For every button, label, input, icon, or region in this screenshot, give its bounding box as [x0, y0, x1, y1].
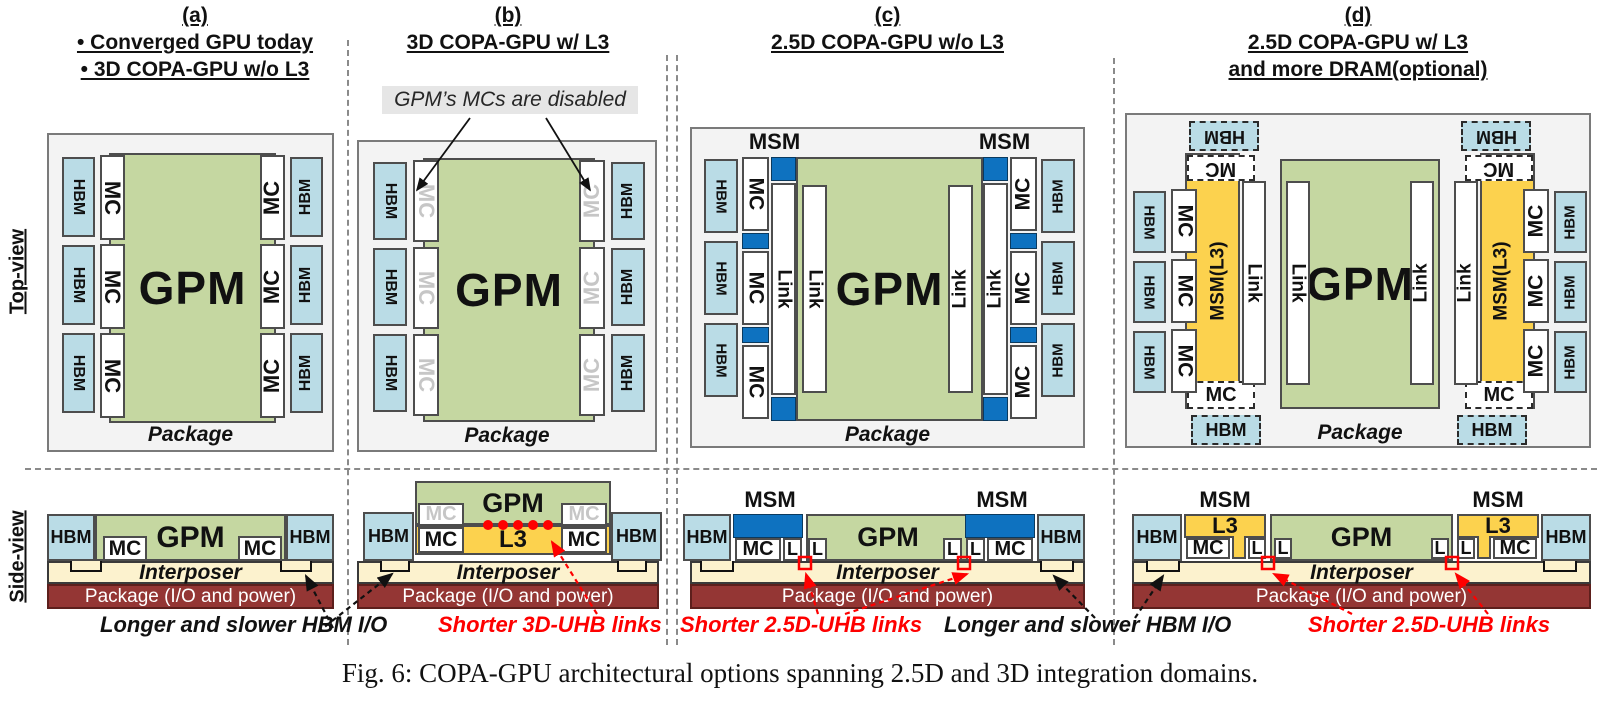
link-pad-block: L	[1431, 538, 1449, 559]
view-divider	[25, 468, 1597, 470]
mc-block: MC	[1523, 189, 1549, 253]
mc-block: MC	[1171, 259, 1197, 323]
hbm-block: HBM	[1041, 323, 1075, 397]
interposer-label: Interposer	[139, 561, 242, 585]
panel-d-line1: 2.5D COPA-GPU w/ L3	[1248, 31, 1468, 54]
package-io-bar: Package (I/O and power)	[690, 584, 1085, 609]
caption-25d-uhb-c: Shorter 2.5D-UHB links	[680, 612, 922, 638]
link-block: Link	[983, 183, 1008, 395]
link-block: Link	[1242, 181, 1266, 385]
hbm-block-optional: HBM	[1189, 121, 1259, 151]
link-pad-block: L	[1274, 538, 1292, 559]
msm-label: MSM	[722, 129, 827, 155]
interposer-label: Interposer	[836, 561, 939, 585]
mc-block: MC	[742, 251, 769, 325]
hbm-io-notch	[70, 561, 102, 572]
hbm-block: HBM	[290, 157, 323, 237]
hbm-block: HBM	[704, 323, 738, 397]
uhb-bridge-block	[771, 157, 796, 181]
mc-disabled-note: GPM’s MCs are disabled	[382, 86, 638, 114]
hbm-block: HBM	[373, 334, 407, 412]
mc-block-side: MC	[238, 536, 282, 561]
msm-label-side: MSM	[1177, 488, 1273, 512]
side-view-label: Side-view	[7, 502, 30, 612]
mc-block-disabled: MC	[413, 247, 439, 329]
hbm-block: HBM	[290, 333, 323, 413]
msm-l3-label: MSM(L3)	[1197, 181, 1240, 381]
interposer-bar: Interposer	[690, 561, 1085, 584]
mc-block: MC	[1523, 259, 1549, 323]
hbm-block-side: HBM	[1132, 514, 1182, 561]
link-block: Link	[802, 185, 827, 393]
l3-leg	[1477, 536, 1491, 559]
hbm-block-optional: HBM	[1457, 415, 1527, 445]
hbm-block: HBM	[373, 162, 407, 240]
mc-block: MC	[100, 333, 125, 418]
link-pad-block: L	[966, 538, 985, 561]
hbm-block: HBM	[1041, 241, 1075, 315]
uhb-bridge-block	[983, 157, 1008, 181]
gpm-label: GPM	[836, 262, 944, 316]
panel-b-tag: (b)	[495, 4, 522, 27]
uhb-bridge-block	[742, 327, 769, 343]
mc-block-side: MC	[987, 538, 1033, 561]
msm-label-side: MSM	[1450, 488, 1546, 512]
uhb-bridge-block	[742, 233, 769, 249]
hbm-block-side: HBM	[683, 514, 731, 561]
hbm-io-notch	[700, 561, 734, 572]
mc-block: MC	[742, 345, 769, 419]
uhb-bridge-block	[983, 397, 1008, 421]
panel-b-header: (b) 3D COPA-GPU w/ L3	[360, 2, 656, 56]
hbm-block: HBM	[611, 334, 645, 412]
mc-block: MC	[1171, 189, 1197, 253]
interposer-label: Interposer	[1310, 561, 1413, 585]
hbm-block: HBM	[373, 248, 407, 326]
mc-block: MC	[260, 244, 285, 329]
figure-canvas: Top-view Side-view (a) • Converged GPU t…	[0, 0, 1600, 711]
caption-hbm-io-left: Longer and slower HBM I/O	[100, 612, 387, 638]
package-label: Package	[359, 424, 655, 448]
panel-b-line1: 3D COPA-GPU w/ L3	[407, 31, 610, 54]
package-io-bar: Package (I/O and power)	[1132, 584, 1591, 609]
gpm-label: GPM	[455, 263, 563, 317]
package-outline-b: GPM HBM HBM HBM MC MC MC MC MC MC HBM HB…	[357, 140, 657, 452]
gpm-label: GPM	[139, 261, 247, 315]
panel-divider	[1113, 58, 1115, 645]
mc-block-disabled: MC	[413, 334, 439, 416]
hbm-block: HBM	[611, 248, 645, 326]
hbm-block: HBM	[62, 157, 95, 237]
hbm-block: HBM	[1133, 261, 1166, 323]
gpm-label: GPM	[156, 521, 224, 555]
hbm-block: HBM	[62, 245, 95, 325]
gpm-die: GPM	[423, 158, 595, 422]
mc-block: MC	[742, 157, 769, 231]
mc-block: MC	[100, 155, 125, 240]
gpm-die: GPM	[109, 153, 276, 423]
hbm-io-notch	[280, 561, 312, 572]
interposer-label: Interposer	[457, 561, 560, 585]
link-pad-block: L	[943, 538, 962, 561]
mc-block-disabled: MC	[579, 160, 605, 242]
mc-block: MC	[1010, 251, 1037, 325]
panel-d-line2: and more DRAM(optional)	[1229, 58, 1488, 81]
msm-l3-label: MSM(L3)	[1480, 181, 1523, 381]
uhb-bridge-block	[771, 397, 796, 421]
panel-d-tag: (d)	[1345, 4, 1372, 27]
caption-hbm-io-right: Longer and slower HBM I/O	[944, 612, 1231, 638]
package-outline-d: HBM HBM MC MC MC MC MSM(L3) MSM(L3) MC M…	[1125, 113, 1591, 448]
mc-block-optional: MC	[1187, 155, 1255, 181]
hbm-block-side: HBM	[611, 512, 662, 561]
mc-block-disabled: MC	[579, 247, 605, 329]
mc-block-side: MC	[418, 527, 464, 553]
link-pad-block: L	[1457, 538, 1475, 559]
mc-block: MC	[1171, 329, 1197, 393]
hbm-block: HBM	[611, 162, 645, 240]
mc-block: MC	[260, 333, 285, 418]
hbm-block-side: HBM	[47, 514, 95, 561]
hbm-block: HBM	[704, 159, 738, 233]
uhb-bridge-block	[1010, 327, 1037, 343]
l3-die-side: L3	[1457, 514, 1539, 538]
top-view-label: Top-view	[7, 217, 30, 327]
hbm-block: HBM	[1133, 191, 1166, 253]
package-label: Package	[692, 423, 1083, 447]
mc-block-side-disabled: MC	[561, 503, 607, 526]
hbm-block-optional: HBM	[1461, 121, 1531, 151]
package-outline-a: GPM HBM HBM HBM MC MC MC MC MC MC HBM HB…	[47, 133, 334, 452]
interposer-bar: Interposer	[1132, 561, 1591, 584]
msm-label: MSM	[952, 129, 1057, 155]
hbm-block: HBM	[1554, 261, 1587, 323]
hbm-block: HBM	[1133, 331, 1166, 393]
hbm-block-optional: HBM	[1191, 415, 1261, 445]
hbm-io-notch	[1040, 561, 1074, 572]
link-block: Link	[1410, 181, 1434, 385]
mc-block-disabled: MC	[579, 334, 605, 416]
link-block: Link	[1454, 181, 1478, 385]
l3-label: L3	[499, 526, 527, 554]
gpm-label: GPM	[1306, 257, 1414, 311]
uhb-bridge-block	[1010, 233, 1037, 249]
panel-divider	[347, 40, 349, 645]
gpm-label: GPM	[857, 522, 919, 553]
panel-a-line1: • Converged GPU today	[77, 31, 313, 54]
link-pad-block: L	[808, 538, 827, 561]
mc-block-side: MC	[1493, 538, 1537, 559]
l3-die-side: L3	[1184, 514, 1266, 538]
panel-divider	[666, 55, 668, 645]
package-label: Package	[49, 423, 332, 447]
hbm-block: HBM	[1554, 331, 1587, 393]
gpm-die-side: GPM	[1270, 514, 1453, 561]
link-pad-block: L	[1248, 538, 1266, 559]
mc-block: MC	[1010, 345, 1037, 419]
link-block: Link	[948, 185, 973, 393]
panel-a-header: (a) • Converged GPU today • 3D COPA-GPU …	[45, 2, 345, 83]
package-io-bar: Package (I/O and power)	[357, 584, 659, 609]
mc-block-side: MC	[735, 538, 781, 561]
caption-3d-uhb: Shorter 3D-UHB links	[438, 612, 662, 638]
hbm-block: HBM	[62, 333, 95, 413]
panel-c-tag: (c)	[875, 4, 901, 27]
msm-die-side	[733, 514, 803, 538]
package-label: Package	[1267, 421, 1453, 445]
link-block: Link	[1286, 181, 1310, 385]
msm-die-side	[965, 514, 1035, 538]
hbm-block-side: HBM	[286, 514, 334, 561]
hbm-io-notch	[380, 561, 410, 572]
hbm-io-notch	[617, 561, 647, 572]
msm-label-side: MSM	[722, 488, 818, 512]
hbm-block: HBM	[1041, 159, 1075, 233]
panel-a-line2: • 3D COPA-GPU w/o L3	[81, 58, 310, 81]
mc-block-disabled: MC	[413, 160, 439, 242]
mc-block: MC	[1010, 157, 1037, 231]
package-outline-c: MSM MSM GPM HBM HBM HBM MC MC MC Link Li…	[690, 127, 1085, 448]
panel-c-line1: 2.5D COPA-GPU w/o L3	[771, 31, 1004, 54]
panel-c-header: (c) 2.5D COPA-GPU w/o L3	[690, 2, 1085, 56]
mc-block: MC	[1523, 329, 1549, 393]
mc-block-optional: MC	[1187, 381, 1255, 409]
panel-divider	[676, 55, 678, 645]
link-pad-block: L	[783, 538, 802, 561]
hbm-block-side: HBM	[1037, 514, 1085, 561]
package-io-bar: Package (I/O and power)	[47, 584, 334, 609]
panel-a-tag: (a)	[182, 4, 208, 27]
hbm-io-notch	[1146, 561, 1180, 572]
hbm-io-notch	[1543, 561, 1577, 572]
mc-block: MC	[260, 155, 285, 240]
link-block: Link	[771, 183, 796, 395]
hbm-block-side: HBM	[1541, 514, 1591, 561]
mc-block: MC	[100, 244, 125, 329]
gpm-label: GPM	[1331, 522, 1393, 553]
l3-leg	[1232, 536, 1246, 559]
msm-label-side: MSM	[954, 488, 1050, 512]
mc-block-optional: MC	[1465, 155, 1533, 181]
figure-caption: Fig. 6: COPA-GPU architectural options s…	[0, 658, 1600, 689]
hbm-block: HBM	[290, 245, 323, 325]
panel-d-header: (d) 2.5D COPA-GPU w/ L3 and more DRAM(op…	[1125, 2, 1591, 83]
hbm-block: HBM	[704, 241, 738, 315]
hbm-block-side: HBM	[363, 512, 414, 561]
mc-block-side: MC	[561, 527, 607, 553]
mc-block-side-disabled: MC	[418, 503, 464, 526]
gpm-label: GPM	[482, 488, 544, 519]
caption-25d-uhb-d: Shorter 2.5D-UHB links	[1308, 612, 1550, 638]
mc-block-side: MC	[103, 536, 147, 561]
hbm-block: HBM	[1554, 191, 1587, 253]
mc-block-side: MC	[1186, 538, 1230, 559]
